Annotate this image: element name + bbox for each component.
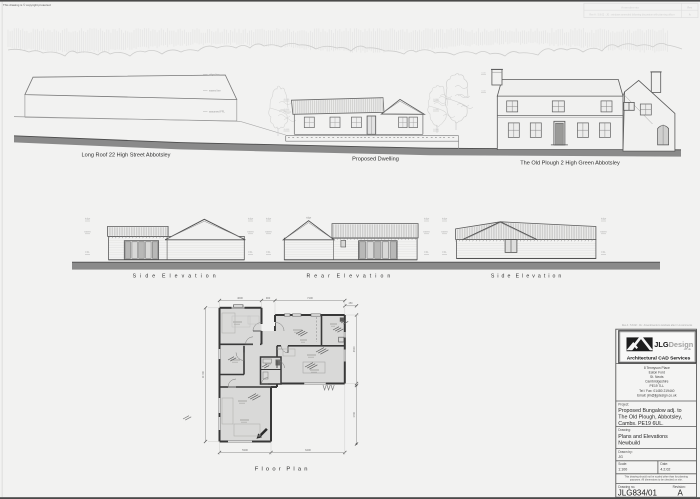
svg-text:Proposed Bungalow adj. to: Proposed Bungalow adj. to	[618, 408, 681, 414]
svg-text:purposes. All dimensions to be: purposes. All dimensions to be checked o…	[630, 479, 683, 482]
svg-text:11700: 11700	[201, 371, 205, 379]
svg-text:Plans and Elevations: Plans and Elevations	[618, 434, 668, 440]
svg-text:6400: 6400	[305, 448, 311, 452]
svg-text:JLG834/01: JLG834/01	[618, 488, 658, 497]
svg-text:ridge: ridge	[442, 218, 448, 221]
svg-text:4600: 4600	[237, 296, 243, 300]
svg-text:Email: jim@jlgdesign.co.uk: Email: jim@jlgdesign.co.uk	[637, 393, 677, 397]
svg-text:eaves: eaves	[265, 231, 272, 234]
svg-text:Rev A : 5.8.02 : JG : windows: Rev A : 5.8.02 : JG : windows amended fo…	[589, 14, 674, 17]
svg-text:Date:: Date:	[660, 462, 668, 466]
svg-text:ridge: ridge	[85, 218, 91, 221]
svg-text:Drawing:: Drawing:	[618, 428, 631, 432]
svg-text:0.000: 0.000	[433, 129, 439, 131]
svg-text:JG: JG	[618, 455, 623, 459]
svg-text:Newbuild: Newbuild	[618, 441, 640, 447]
svg-text:eaves line: eaves line	[209, 89, 221, 93]
svg-text:Tel / Fax: 01480 219440: Tel / Fax: 01480 219440	[639, 389, 675, 393]
svg-text:eaves: eaves	[441, 231, 448, 234]
svg-text:A: A	[678, 488, 684, 497]
svg-text:Cambridgeshire: Cambridgeshire	[645, 380, 668, 384]
svg-text:ridge: ridge	[266, 218, 272, 221]
svg-text:A: A	[689, 12, 691, 16]
svg-text:Cambs. PE19 6UL.: Cambs. PE19 6UL.	[618, 421, 663, 427]
svg-text:Proposed Dwelling: Proposed Dwelling	[352, 156, 399, 162]
svg-text:Rev: Rev	[687, 5, 692, 9]
svg-text:ridge: ridge	[601, 218, 607, 221]
svg-text:This drawing is © copyright pr: This drawing is © copyright protected	[3, 3, 51, 7]
svg-text:ridge line: ridge line	[209, 72, 220, 76]
svg-text:7100: 7100	[307, 296, 313, 300]
svg-text:1790: 1790	[352, 411, 356, 417]
svg-text:Eaton Ford: Eaton Ford	[649, 370, 665, 374]
svg-text:eaves: eaves	[247, 231, 254, 234]
svg-text:S i d e E l e v a t i o n: S i d e E l e v a t i o n	[133, 274, 217, 280]
svg-text:4.2.02: 4.2.02	[660, 468, 670, 472]
svg-text:eaves: eaves	[600, 231, 607, 234]
svg-text:St. Neots: St. Neots	[650, 375, 664, 379]
svg-text:R e a r E l e v a t i o n: R e a r E l e v a t i o n	[306, 274, 391, 280]
svg-text:S i d e E l e v a t i o n: S i d e E l e v a t i o n	[491, 274, 562, 280]
svg-text:assumed FFL: assumed FFL	[209, 110, 225, 114]
svg-text:Drawn by:: Drawn by:	[618, 450, 632, 454]
svg-text:FFL: FFL	[85, 251, 90, 254]
svg-text:Project:: Project:	[618, 403, 629, 407]
svg-text:FFL: FFL	[248, 251, 253, 254]
svg-text:Architectural CAD Services: Architectural CAD Services	[627, 356, 691, 362]
svg-text:F l o o r P l a n: F l o o r P l a n	[255, 467, 309, 473]
svg-text:Amendments: Amendments	[621, 5, 639, 9]
svg-text:FFL: FFL	[442, 251, 447, 254]
svg-text:Long Roof 22 High Street Abbot: Long Roof 22 High Street Abbotsley	[82, 152, 171, 158]
svg-text:0.000: 0.000	[433, 99, 439, 101]
svg-text:JLG: JLG	[654, 340, 669, 349]
svg-text:5300: 5300	[242, 448, 248, 452]
svg-text:450: 450	[349, 302, 354, 305]
svg-text:.co.uk: .co.uk	[683, 347, 692, 351]
svg-text:The Old Plough 2 High Green Ab: The Old Plough 2 High Green Abbotsley	[520, 160, 620, 166]
svg-text:ridge: ridge	[424, 218, 430, 221]
svg-text:PE19 7LL: PE19 7LL	[650, 384, 665, 388]
svg-text:0.000: 0.000	[284, 129, 290, 131]
svg-text:FFL: FFL	[601, 251, 606, 254]
svg-text:0.000: 0.000	[284, 99, 290, 101]
svg-text:FFL: FFL	[266, 251, 271, 254]
svg-text:ridge: ridge	[306, 216, 312, 219]
svg-text:Scale:: Scale:	[618, 462, 627, 466]
svg-text:900: 900	[266, 296, 271, 300]
svg-text:4500: 4500	[352, 346, 356, 352]
svg-text:FFL: FFL	[424, 251, 429, 254]
svg-text:eaves: eaves	[84, 231, 91, 234]
svg-text:1:100: 1:100	[618, 468, 627, 472]
svg-text:0.000: 0.000	[433, 109, 439, 111]
svg-text:eaves: eaves	[423, 231, 430, 234]
svg-text:8 Tennyson Place: 8 Tennyson Place	[644, 366, 670, 370]
svg-text:The Old Plough, Abbotsley,: The Old Plough, Abbotsley,	[618, 414, 682, 420]
svg-text:Rev A : 5.8.02 : JG : Amendmen: Rev A : 5.8.02 : JG : Amendments to wind…	[622, 324, 693, 327]
svg-text:ridge: ridge	[248, 218, 254, 221]
svg-text:0.000: 0.000	[284, 109, 290, 111]
